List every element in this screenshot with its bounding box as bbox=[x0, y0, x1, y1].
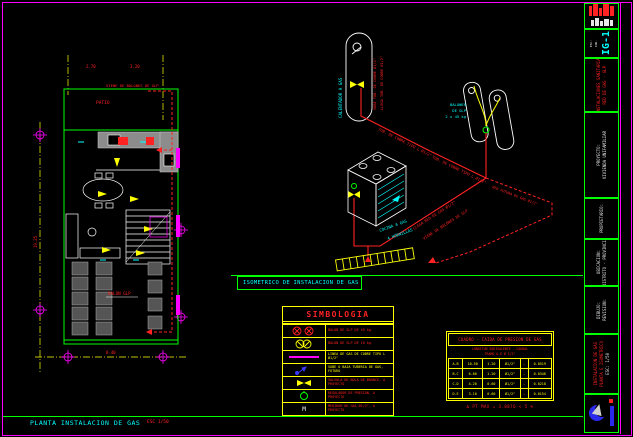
cell: - bbox=[520, 359, 528, 369]
logo-sail-shape bbox=[591, 402, 603, 415]
discipline-line: INSTALACIONES SANITARIAS bbox=[596, 58, 601, 112]
calentador-label: CALENTADOR A GAS bbox=[338, 77, 343, 118]
logo-bar bbox=[610, 406, 614, 426]
planters bbox=[72, 262, 162, 335]
svg-text:2 x 45 kg: 2 x 45 kg bbox=[445, 114, 466, 119]
cell: - bbox=[520, 379, 528, 389]
cell: - bbox=[520, 389, 528, 399]
cell: 6.80 bbox=[463, 369, 483, 379]
cell: 0.60 bbox=[483, 389, 500, 399]
drafter-cell: DIBUJO: REVISION: bbox=[584, 286, 619, 334]
legend-symbol-cell bbox=[283, 377, 326, 389]
heater-valve bbox=[350, 81, 364, 88]
sube-label: SUBE TUB. DE COBRE Ø1/2" bbox=[372, 58, 377, 110]
legend-panel: SIMBOLOGIA BALON DE GLP DE 45 kg. bbox=[282, 306, 394, 416]
flex-hoses bbox=[474, 86, 500, 126]
plan-supply-note: VIENE DE BALONES DE GLP bbox=[106, 83, 159, 88]
sheet-meta: IND. bbox=[595, 40, 599, 47]
sofa-set bbox=[66, 214, 120, 258]
gas-table-title: CUADRO - CAIDA DE PRESION DE GAS bbox=[458, 337, 541, 342]
pipe-label-2: TUB. DE COBRE TIPO L Ø1/2" bbox=[432, 154, 488, 185]
legend-title-box: SIMBOLOGIA bbox=[283, 307, 393, 322]
drafter-line: DIBUJO: bbox=[596, 302, 601, 319]
drafter-line: REVISION: bbox=[602, 299, 607, 321]
cell: 0.0346 bbox=[528, 369, 551, 379]
cell: 4.20 bbox=[463, 379, 483, 389]
cell: 1.20 bbox=[483, 359, 500, 369]
gas-table-subtitle1: LONGITUD EQUIVALENTE - CAUDAL bbox=[448, 347, 552, 351]
legend-symbol-cell: M bbox=[283, 403, 326, 415]
stove-box bbox=[348, 152, 406, 226]
stove-valve bbox=[348, 191, 360, 198]
gas-table-box: CUADRO - CAIDA DE PRESION DE GAS LONGITU… bbox=[446, 331, 554, 401]
legend-label: SUBE O BAJA TUBERIA DE GAS, FUTURO bbox=[326, 366, 393, 373]
location-line: UBICACION: bbox=[596, 250, 601, 274]
cell: 0.0519 bbox=[528, 359, 551, 369]
legend-row: BALON DE GLP DE 45 kg. bbox=[283, 324, 393, 337]
project-line: VIVIENDA UNIFAMILIAR bbox=[602, 131, 607, 179]
plan-sheet-title: PLANTA INSTALACION DE GAS bbox=[30, 419, 140, 427]
legend-label: LINEA DE GAS DE COBRE TIPO L Ø1/2" bbox=[326, 353, 393, 360]
project-line: PROYECTO: bbox=[596, 144, 601, 166]
cell: B-C bbox=[449, 369, 463, 379]
legend-row: BALON DE GLP DE 10 kg. bbox=[283, 337, 393, 350]
calentador-cylinder bbox=[346, 33, 372, 121]
plan-gas-pipe bbox=[148, 91, 172, 332]
table-row: C-D4.200.60Ø1/2"-0.0218 bbox=[449, 379, 552, 389]
sheet-code-cell: ESC: IND. IG-1 bbox=[584, 29, 619, 58]
floor-plan: PATIO VIENE DE BALONES DE GLP BALON GLP … bbox=[33, 55, 188, 372]
legend-label: REGULADOR DE PRESION, A PROYECTO bbox=[326, 392, 393, 399]
cell: Ø1/2" bbox=[500, 359, 520, 369]
legend-label: BALON DE GLP DE 10 kg. bbox=[326, 342, 393, 346]
stove-fitting bbox=[352, 184, 357, 189]
glp-cylinders bbox=[462, 77, 515, 155]
logo-dot bbox=[609, 399, 613, 403]
project-cell: PROYECTO: VIVIENDA UNIFAMILIAR bbox=[584, 112, 619, 198]
legend-title: SIMBOLOGIA bbox=[306, 310, 369, 319]
cell: 0.0218 bbox=[528, 379, 551, 389]
cell: 0.60 bbox=[483, 379, 500, 389]
cell: 3.10 bbox=[463, 389, 483, 399]
pressure-note: Δ PT MAX = 3.0876 < 5 % bbox=[446, 404, 554, 409]
main-pipe-label-1: LLEGA RED DE GAS Ø1/2" bbox=[412, 199, 457, 231]
legend-symbol-cell bbox=[283, 364, 326, 376]
legend-row: SUBE O BAJA TUBERIA DE GAS, FUTURO bbox=[283, 363, 393, 376]
iso-title: ISOMETRICO DE INSTALACION DE GAS bbox=[243, 280, 359, 286]
legend-label: VALVULA DE BOLA DE BRONCE, A PROYECTO bbox=[326, 379, 393, 386]
isometric-view: CALENTADOR A GAS SUBE TUB. DE COBRE Ø1/2… bbox=[336, 33, 552, 271]
gas-line-icon bbox=[284, 352, 324, 362]
dim-top-b: 3.20 bbox=[130, 64, 140, 69]
legend-row: LINEA DE GAS DE COBRE TIPO L Ø1/2" bbox=[283, 350, 393, 363]
location-line: DISTRITO - PROVINCIA bbox=[602, 239, 607, 286]
dim-top-a: 2.70 bbox=[86, 64, 96, 69]
iso-pipe-arrows bbox=[365, 256, 436, 263]
legend-row: REGULADOR DE PRESION, A PROYECTO bbox=[283, 389, 393, 402]
riser-icon bbox=[284, 365, 324, 375]
cell: D-E bbox=[449, 389, 463, 399]
cell: 1.20 bbox=[483, 369, 500, 379]
cad-sheet: PATIO VIENE DE BALONES DE GLP BALON GLP … bbox=[0, 0, 633, 437]
svg-text:BALONES: BALONES bbox=[450, 102, 467, 107]
location-map-cell bbox=[584, 3, 619, 29]
sheet-scale-line: ESC: 1/50 bbox=[605, 353, 610, 375]
owner-cell: PROPIETARIO: bbox=[584, 198, 619, 239]
stove-arrow bbox=[392, 195, 400, 202]
sheet-name-line: INSTALACION DE GAS bbox=[593, 342, 598, 385]
title-block: ESC: IND. IG-1 INSTALACIONES SANITARIAS … bbox=[584, 3, 619, 433]
table-row: A-B10.501.20Ø1/2"-0.0519 bbox=[449, 359, 552, 369]
main-pipe-label-2: VIENE DE BALONES DE GLP bbox=[422, 208, 469, 241]
cell: Ø1/2" bbox=[500, 379, 520, 389]
owner-line: PROPIETARIO: bbox=[599, 204, 604, 233]
llega-label: LLEGA TUB. DE COBRE Ø1/2" bbox=[379, 56, 384, 110]
svg-text:DE GLP: DE GLP bbox=[452, 108, 466, 113]
grill bbox=[336, 248, 415, 271]
regulator-icon bbox=[284, 391, 324, 401]
cell: C-D bbox=[449, 379, 463, 389]
dim-bottom: 8.40 bbox=[106, 350, 116, 355]
cell: 0.0154 bbox=[528, 389, 551, 399]
location-map-bars-red bbox=[588, 3, 615, 16]
legend-row: M MEDIDOR DE GAS Ø1/2", A PROYECTO bbox=[283, 402, 393, 415]
sheet-code: IG-1 bbox=[600, 31, 613, 55]
discipline-cell: INSTALACIONES SANITARIAS RED DE GAS - GL… bbox=[584, 58, 619, 112]
legend-symbol-cell bbox=[283, 325, 326, 337]
balones-note: BALONES DE GLP 2 x 45 kg bbox=[445, 102, 466, 119]
gas-table-grid: A-B10.501.20Ø1/2"-0.0519 B-C6.801.20Ø1/2… bbox=[448, 358, 552, 399]
balon-45-icon bbox=[284, 326, 324, 336]
dining-table bbox=[83, 173, 123, 208]
gas-calc-table: CUADRO - CAIDA DE PRESION DE GAS LONGITU… bbox=[446, 331, 554, 409]
pipe-label-1: TUB. DE COBRE TIPO L Ø1/2" bbox=[378, 126, 433, 157]
table-row: B-C6.801.20Ø1/2"-0.0346 bbox=[449, 369, 552, 379]
balon-10-icon bbox=[284, 339, 324, 349]
dim-left: 19.25 bbox=[33, 235, 38, 248]
table-row: D-E3.100.60Ø1/2"-0.0154 bbox=[449, 389, 552, 399]
legend-symbol-cell bbox=[283, 338, 326, 350]
cell: Ø1/2" bbox=[500, 389, 520, 399]
cell: Ø1/2" bbox=[500, 369, 520, 379]
company-logo-cell bbox=[584, 394, 619, 433]
sheet-name-line: PLANTA E ISOMETRICO bbox=[599, 341, 604, 387]
legend-row: VALVULA DE BOLA DE BRONCE, A PROYECTO bbox=[283, 376, 393, 389]
company-logo bbox=[587, 397, 617, 431]
cell: A-B bbox=[449, 359, 463, 369]
cell: - bbox=[520, 369, 528, 379]
patio-label: PATIO bbox=[96, 100, 110, 106]
gas-table-title-box: CUADRO - CAIDA DE PRESION DE GAS bbox=[448, 333, 552, 346]
legend-symbol-cell bbox=[283, 351, 326, 363]
iso-title-box: ISOMETRICO DE INSTALACION DE GAS bbox=[237, 276, 362, 290]
valve-icon bbox=[284, 378, 324, 388]
plan-sheet-scale: ESC 1/50 bbox=[147, 420, 169, 425]
gas-table-subtitle2: TRAMO A-E Ø 1/2" bbox=[448, 352, 552, 356]
future-pipe-label: RED FUTURA DE GAS Ø1/2" bbox=[492, 184, 539, 206]
legend-label: MEDIDOR DE GAS Ø1/2", A PROYECTO bbox=[326, 405, 393, 412]
sheet-name-cell: INSTALACION DE GAS PLANTA E ISOMETRICO E… bbox=[584, 334, 619, 394]
meter-icon: M bbox=[302, 406, 306, 413]
location-map-bars-white bbox=[588, 18, 615, 26]
cell: 10.50 bbox=[463, 359, 483, 369]
discipline-line: RED DE GAS - GLP bbox=[602, 66, 607, 105]
regulator-fitting bbox=[483, 127, 489, 133]
balon-label: BALON GLP bbox=[108, 291, 131, 296]
kitchen-counters bbox=[78, 132, 178, 172]
location-cell: UBICACION: DISTRITO - PROVINCIA bbox=[584, 239, 619, 286]
legend-symbol-cell bbox=[283, 390, 326, 402]
legend-label: BALON DE GLP DE 45 kg. bbox=[326, 329, 393, 333]
